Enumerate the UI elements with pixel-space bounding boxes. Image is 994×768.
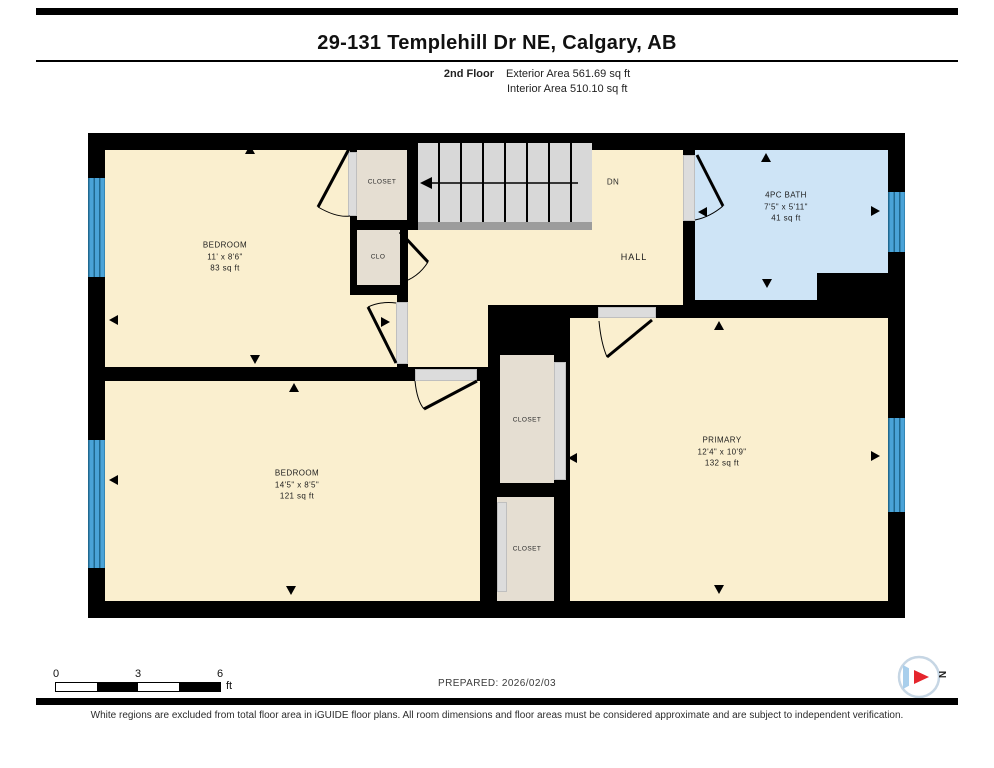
top-divider-bar — [36, 8, 958, 15]
label-primary: PRIMARY 12'4" x 10'9" 132 sq ft — [697, 435, 746, 470]
scale-unit: ft — [226, 680, 232, 692]
room-hall-lower — [408, 305, 488, 367]
scale-label-3: 3 — [135, 668, 141, 680]
dim-arrow-icon — [568, 453, 577, 463]
title-divider — [36, 60, 958, 62]
door-opening-bath — [683, 155, 695, 221]
dim-arrow-icon — [714, 585, 724, 594]
dim-arrow-icon — [871, 451, 880, 461]
room-bedroom-top-alcove — [350, 295, 397, 367]
dim-arrow-icon — [109, 475, 118, 485]
compass-north-label: N — [936, 671, 947, 678]
door-opening-bedroom-bottom — [415, 369, 477, 381]
interior-area-text: Interior Area 510.10 sq ft — [507, 83, 627, 95]
window-bath — [888, 192, 905, 252]
compass-icon — [896, 654, 942, 700]
dim-arrow-icon — [286, 586, 296, 595]
bottom-divider-bar — [36, 698, 958, 705]
floorplan-page: 29-131 Templehill Dr NE, Calgary, AB 2nd… — [0, 0, 994, 768]
scale-label-0: 0 — [53, 668, 59, 680]
window-bedroom-top — [88, 178, 105, 277]
room-hall-main — [408, 230, 683, 305]
label-closet-top: CLOSET — [368, 179, 396, 186]
floor-label: 2nd Floor — [404, 68, 494, 80]
dim-arrow-icon — [245, 145, 255, 154]
dim-arrow-icon — [250, 355, 260, 364]
dim-arrow-icon — [871, 206, 880, 216]
label-closet-bottom: CLOSET — [513, 546, 541, 553]
dim-arrow-icon — [109, 315, 118, 325]
dim-arrow-icon — [761, 153, 771, 162]
dim-arrow-icon — [714, 321, 724, 330]
label-closet-small: CLO — [371, 254, 386, 261]
page-title: 29-131 Templehill Dr NE, Calgary, AB — [0, 32, 994, 55]
stairs-edge — [418, 222, 592, 230]
label-closet-mid: CLOSET — [513, 417, 541, 424]
window-bedroom-bottom — [88, 440, 105, 568]
dim-arrow-icon — [289, 383, 299, 392]
door-sliding-closet-bottom — [497, 502, 507, 592]
door-sliding-closet-mid — [554, 362, 566, 480]
label-hall: HALL — [621, 252, 648, 262]
label-bedroom-bottom: BEDROOM 14'5" x 8'5" 121 sq ft — [275, 468, 319, 503]
label-stairs-dn: DN — [607, 178, 619, 187]
door-opening-primary — [598, 307, 656, 318]
dim-arrow-icon — [698, 207, 707, 217]
label-bedroom-top: BEDROOM 11' x 8'6" 83 sq ft — [203, 240, 247, 275]
disclaimer-text: White regions are excluded from total fl… — [0, 710, 994, 721]
prepared-date: PREPARED: 2026/02/03 — [377, 678, 617, 689]
label-bath: 4PC BATH 7'5" x 5'11" 41 sq ft — [764, 190, 808, 225]
dim-arrow-icon — [762, 279, 772, 288]
scale-label-6: 6 — [217, 668, 223, 680]
room-hall-right — [592, 150, 683, 230]
exterior-area-text: Exterior Area 561.69 sq ft — [506, 68, 630, 80]
floor-plan: BEDROOM 11' x 8'6" 83 sq ft BEDROOM 14'5… — [88, 133, 905, 618]
door-opening-closet-top — [348, 152, 357, 216]
dim-arrow-icon — [381, 317, 390, 327]
bath-wall-notch — [817, 273, 888, 300]
stairs-treads — [418, 143, 592, 222]
window-primary — [888, 418, 905, 512]
door-opening-bedroom-top — [396, 302, 408, 364]
scale-bar — [55, 682, 221, 692]
